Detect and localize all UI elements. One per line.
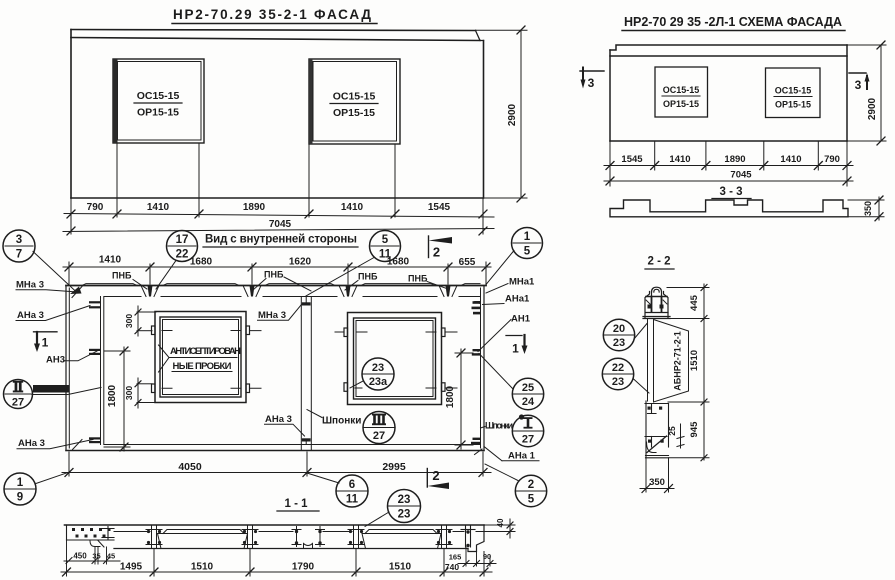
svg-text:9: 9: [17, 492, 23, 504]
svg-text:350: 350: [649, 477, 665, 488]
svg-text:1510: 1510: [689, 350, 700, 371]
svg-text:АНа 1: АНа 1: [508, 451, 536, 462]
svg-text:1680: 1680: [190, 257, 213, 268]
svg-text:4050: 4050: [178, 461, 202, 473]
svg-text:ОР15-15: ОР15-15: [663, 99, 699, 109]
svg-text:1890: 1890: [243, 202, 266, 213]
svg-text:ПНБ: ПНБ: [112, 271, 132, 281]
svg-text:1510: 1510: [389, 562, 412, 573]
svg-text:7045: 7045: [730, 170, 752, 181]
svg-text:2995: 2995: [382, 461, 406, 473]
svg-text:1: 1: [17, 477, 24, 489]
svg-text:27: 27: [522, 434, 534, 446]
svg-text:3: 3: [855, 78, 862, 92]
svg-text:740: 740: [445, 562, 459, 572]
svg-text:11: 11: [379, 249, 392, 261]
svg-text:МНа 3: МНа 3: [16, 280, 44, 291]
svg-text:1800: 1800: [445, 385, 456, 408]
svg-text:27: 27: [12, 397, 24, 409]
svg-text:1790: 1790: [292, 562, 315, 573]
svg-text:ОС15-15: ОС15-15: [775, 86, 812, 96]
svg-text:2: 2: [528, 479, 534, 491]
svg-text:3: 3: [16, 234, 22, 246]
svg-text:23: 23: [398, 494, 411, 506]
svg-text:1800: 1800: [107, 384, 118, 407]
svg-text:АН3: АН3: [46, 355, 65, 366]
svg-text:1: 1: [42, 336, 49, 350]
svg-text:АНа 3: АНа 3: [265, 414, 292, 425]
svg-text:АНа 3: АНа 3: [18, 438, 45, 449]
svg-text:3 - 3: 3 - 3: [719, 186, 742, 198]
svg-text:1410: 1410: [99, 255, 122, 266]
svg-text:2: 2: [433, 245, 440, 260]
svg-text:1495: 1495: [120, 562, 143, 573]
svg-text:Вид с внутренней стороны: Вид с внутренней стороны: [205, 234, 357, 246]
svg-text:АНа1: АНа1: [505, 294, 530, 305]
svg-text:40: 40: [496, 518, 505, 527]
svg-text:3: 3: [588, 76, 595, 90]
svg-text:НЫЕ ПРОБКИ: НЫЕ ПРОБКИ: [173, 361, 232, 372]
svg-text:ПНБ: ПНБ: [408, 274, 428, 284]
svg-text:МНа1: МНа1: [509, 277, 535, 288]
svg-text:790: 790: [824, 154, 840, 165]
svg-text:445: 445: [689, 294, 700, 311]
svg-text:2900: 2900: [867, 97, 878, 120]
svg-text:22: 22: [612, 362, 624, 374]
svg-text:1: 1: [512, 342, 519, 356]
svg-text:1410: 1410: [780, 154, 801, 165]
svg-text:1 - 1: 1 - 1: [284, 498, 308, 510]
svg-text:23: 23: [398, 509, 411, 521]
svg-text:300: 300: [124, 386, 134, 400]
svg-text:1545: 1545: [428, 202, 451, 213]
svg-text:МНа 3: МНа 3: [258, 310, 286, 321]
svg-text:НР2-70 29 35 -2Л-1 СХЕМА ФАСАД: НР2-70 29 35 -2Л-1 СХЕМА ФАСАДА: [624, 15, 842, 29]
svg-text:23: 23: [613, 337, 625, 349]
svg-text:АН1: АН1: [511, 314, 531, 325]
svg-text:165: 165: [449, 553, 462, 562]
svg-text:НР2-70.29 35-2-1 ФАСАД: НР2-70.29 35-2-1 ФАСАД: [173, 7, 371, 22]
svg-text:7045: 7045: [269, 219, 292, 230]
svg-text:5: 5: [528, 494, 535, 506]
svg-text:АНТИСЕПТИРОВАН: АНТИСЕПТИРОВАН: [170, 346, 241, 357]
svg-text:ОС15-15: ОС15-15: [663, 85, 700, 95]
svg-text:23: 23: [372, 362, 384, 374]
svg-text:ОР15-15: ОР15-15: [333, 107, 375, 119]
svg-text:11: 11: [346, 494, 359, 506]
svg-text:23: 23: [612, 376, 624, 388]
svg-text:1545: 1545: [621, 154, 643, 165]
svg-text:6: 6: [349, 479, 355, 491]
svg-text:ПНБ: ПНБ: [264, 270, 284, 280]
svg-text:20: 20: [613, 323, 625, 335]
svg-text:АНа 3: АНа 3: [17, 310, 44, 321]
svg-text:2: 2: [432, 468, 439, 483]
svg-text:ОР15-15: ОР15-15: [137, 107, 179, 119]
svg-text:Шпонки: Шпонки: [485, 421, 513, 431]
svg-text:1410: 1410: [669, 154, 690, 165]
svg-text:5: 5: [382, 234, 389, 246]
svg-text:1620: 1620: [289, 257, 312, 268]
svg-text:17: 17: [176, 234, 189, 246]
svg-text:27: 27: [373, 430, 385, 442]
svg-text:ОР15-15: ОР15-15: [775, 100, 811, 110]
svg-text:23а: 23а: [369, 376, 388, 388]
svg-text:5: 5: [524, 246, 531, 258]
svg-text:45: 45: [107, 552, 115, 561]
svg-text:655: 655: [459, 257, 476, 268]
svg-text:35: 35: [92, 552, 100, 561]
svg-text:25: 25: [522, 382, 534, 394]
svg-text:1890: 1890: [724, 154, 745, 165]
svg-text:ПНБ: ПНБ: [358, 272, 378, 282]
svg-text:24: 24: [522, 396, 535, 408]
svg-text:АБНР2-71-2-1: АБНР2-71-2-1: [673, 331, 683, 391]
svg-text:2 - 2: 2 - 2: [647, 256, 670, 268]
svg-text:22: 22: [176, 249, 189, 261]
svg-text:ОС15-15: ОС15-15: [137, 90, 180, 102]
svg-text:1410: 1410: [341, 202, 364, 213]
svg-text:7: 7: [16, 249, 22, 261]
svg-text:790: 790: [87, 202, 104, 213]
svg-text:25: 25: [667, 426, 677, 436]
svg-text:ОС15-15: ОС15-15: [333, 91, 376, 103]
svg-text:1: 1: [524, 231, 531, 243]
svg-text:300: 300: [124, 314, 134, 328]
svg-text:1410: 1410: [147, 202, 170, 213]
svg-text:450: 450: [73, 552, 87, 561]
svg-text:945: 945: [689, 421, 700, 438]
svg-text:350: 350: [863, 201, 873, 216]
svg-text:2900: 2900: [507, 103, 518, 126]
svg-text:1510: 1510: [191, 562, 214, 573]
svg-text:Шпонки: Шпонки: [322, 416, 361, 427]
